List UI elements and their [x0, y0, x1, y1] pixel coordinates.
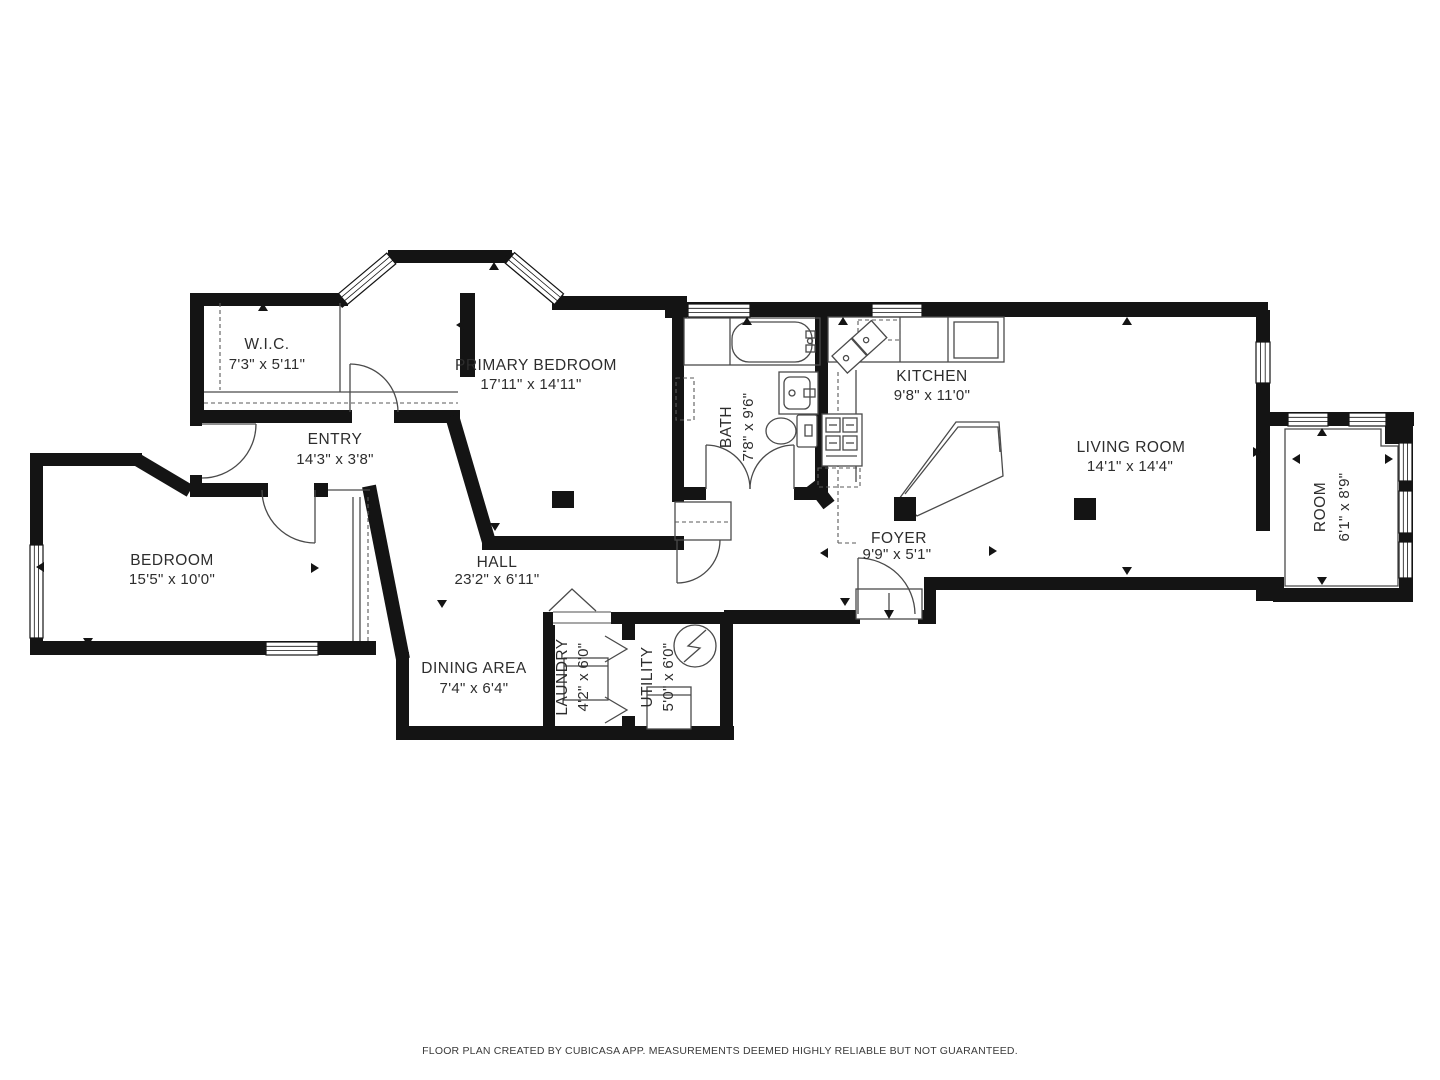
room-name-living: LIVING ROOM: [1077, 439, 1186, 456]
wic-closet: [204, 303, 458, 403]
window: [339, 253, 396, 304]
window: [1288, 413, 1328, 426]
room-dims-wic: 7'3" x 5'11": [229, 356, 305, 373]
window: [1256, 342, 1270, 383]
window: [30, 545, 43, 638]
room-labels: W.I.C. 7'3" x 5'11" PRIMARY BEDROOM 17'1…: [129, 336, 1353, 716]
kitchen-sink: [832, 321, 887, 374]
room-name-hall: HALL: [477, 554, 518, 571]
floor-plan: W.I.C. 7'3" x 5'11" PRIMARY BEDROOM 17'1…: [0, 0, 1440, 1080]
window: [1399, 443, 1412, 481]
door-arcs: [202, 364, 794, 583]
footer-disclaimer: FLOOR PLAN CREATED BY CUBICASA APP. MEAS…: [422, 1045, 1018, 1057]
window: [872, 304, 922, 317]
room-dims-bedroom: 15'5" x 10'0": [129, 571, 215, 588]
bedroom-closet: [328, 490, 370, 641]
room-name-dining: DINING AREA: [421, 660, 527, 677]
room-dims-living: 14'1" x 14'4": [1087, 458, 1173, 475]
window: [1399, 491, 1412, 533]
window: [506, 253, 564, 305]
room-name-primary: PRIMARY BEDROOM: [455, 357, 617, 374]
room-name-wic: W.I.C.: [244, 336, 289, 353]
front-door: [856, 558, 922, 619]
window: [1349, 413, 1386, 426]
floorplan-page: W.I.C. 7'3" x 5'11" PRIMARY BEDROOM 17'1…: [0, 0, 1440, 1080]
laundry-opening: [553, 611, 611, 625]
room-dims-utility: 5'0" x 6'0": [660, 643, 677, 712]
bathtub: [684, 318, 820, 365]
room-dims-room: 6'1" x 8'9": [1336, 473, 1353, 542]
room-name-entry: ENTRY: [308, 431, 363, 448]
room-name-kitchen: KITCHEN: [896, 368, 968, 385]
room-name-utility: UTILITY: [639, 646, 656, 707]
room-dims-dining: 7'4" x 6'4": [440, 680, 509, 697]
toilet: [766, 415, 817, 447]
room-dims-kitchen: 9'8" x 11'0": [894, 387, 970, 404]
room-dims-foyer: 9'9" x 5'1": [863, 546, 932, 563]
window: [266, 642, 318, 655]
window: [1399, 542, 1412, 578]
room-name-bedroom: BEDROOM: [130, 552, 214, 569]
hall-closet: [675, 502, 731, 540]
room-name-foyer: FOYER: [871, 530, 927, 547]
room-dims-bath: 7'8" x 9'6": [740, 393, 757, 462]
stove: [822, 414, 862, 466]
room-dims-hall: 23'2" x 6'11": [454, 571, 539, 588]
room-dims-laundry: 4'2" x 6'0": [575, 643, 592, 712]
walls: [30, 250, 1414, 740]
room-name-room: ROOM: [1312, 482, 1329, 532]
water-heater-icon: [674, 625, 716, 667]
room-name-laundry: LAUNDRY: [554, 638, 571, 715]
room-dims-primary: 17'11" x 14'11": [480, 376, 581, 393]
window: [688, 304, 750, 317]
room-dims-entry: 14'3" x 3'8": [296, 451, 374, 468]
vanity-sink: [779, 372, 818, 414]
room-name-bath: BATH: [718, 406, 735, 448]
